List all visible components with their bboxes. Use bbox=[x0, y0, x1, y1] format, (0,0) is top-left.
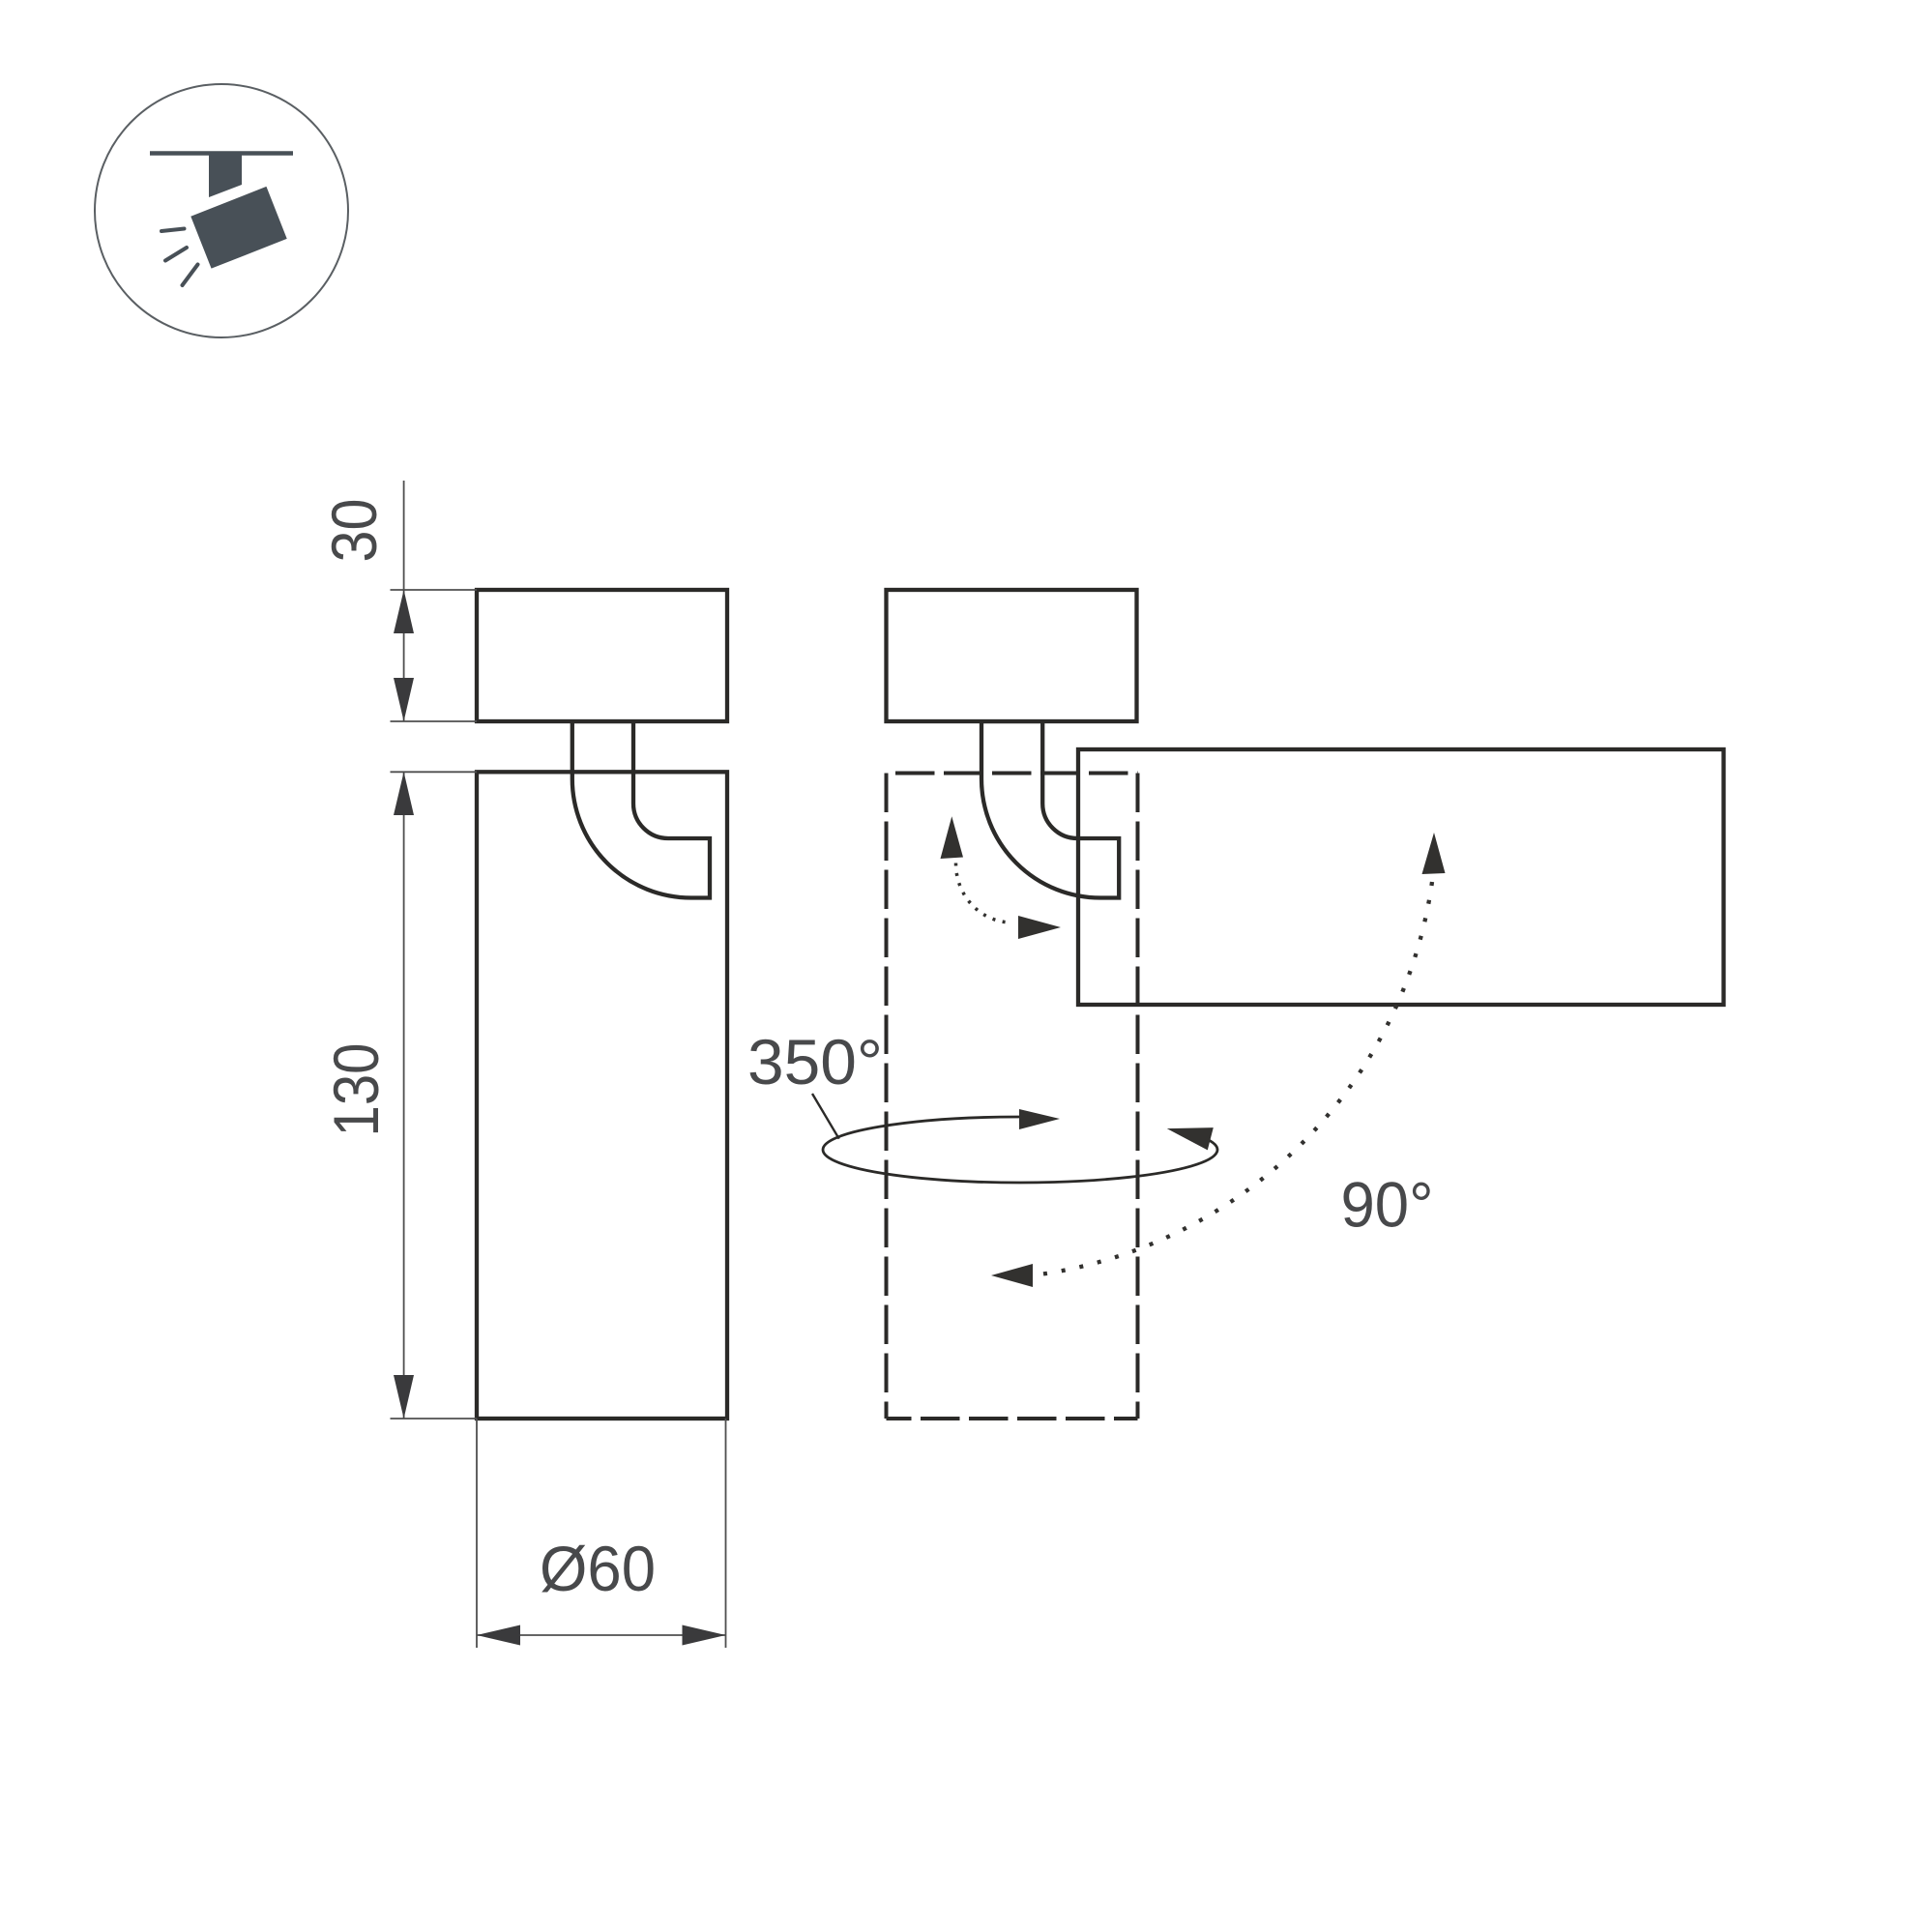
svg-text:90°: 90° bbox=[1341, 1169, 1434, 1241]
svg-text:130: 130 bbox=[320, 1043, 392, 1137]
svg-text:350°: 350° bbox=[747, 1026, 883, 1098]
svg-text:30: 30 bbox=[318, 499, 390, 563]
svg-text:Ø60: Ø60 bbox=[540, 1533, 656, 1604]
